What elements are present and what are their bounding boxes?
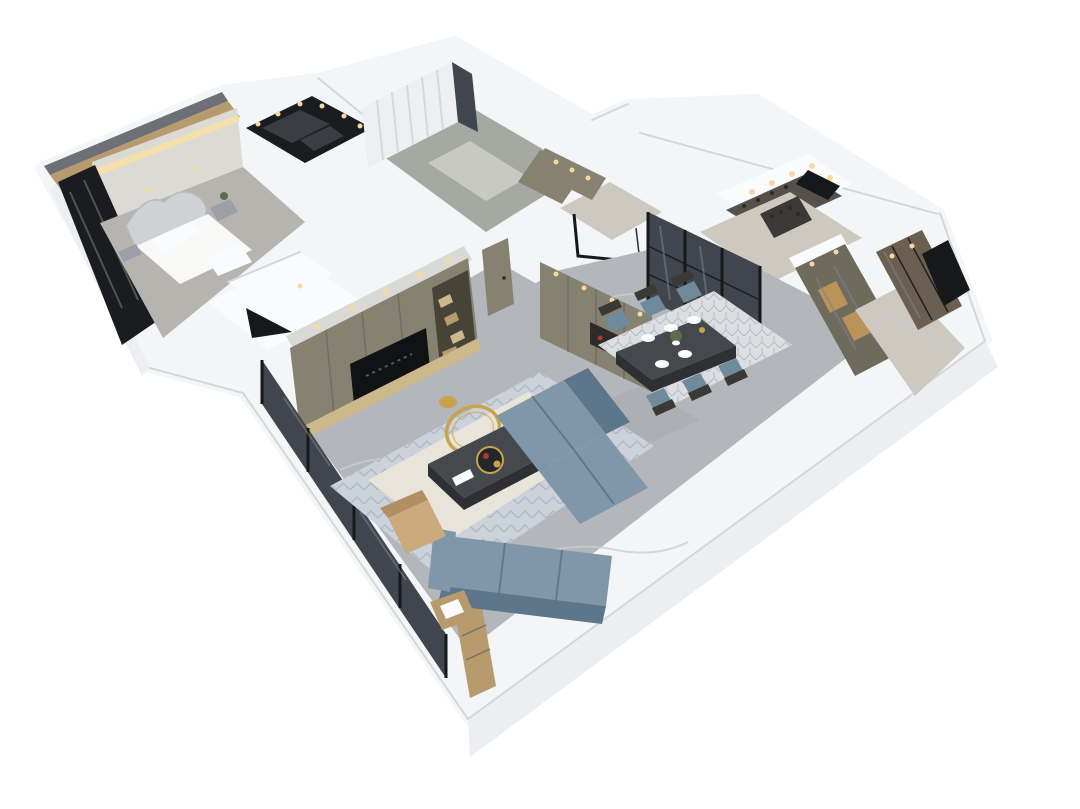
wine-bottle (770, 191, 774, 195)
downlight (769, 180, 775, 186)
red-decor (598, 336, 603, 341)
gold-decor (699, 327, 705, 333)
apartment-cutaway-render: Photorealistic 3D dollhouse cutaway rend… (0, 0, 1080, 809)
gold-side-stool (439, 396, 457, 408)
downlight (789, 171, 795, 177)
downlight (910, 244, 915, 249)
downlight (834, 250, 839, 255)
wine-bottle (779, 210, 783, 214)
wall-sconce (146, 188, 151, 193)
dinner-plate (655, 360, 669, 368)
downlight (417, 272, 423, 278)
tray-decor (483, 453, 489, 459)
downlight (554, 160, 559, 165)
wine-bottle (770, 214, 774, 218)
dinner-plate (678, 350, 692, 358)
downlight (445, 258, 451, 264)
downlight (554, 272, 559, 277)
centerpiece-vase (672, 341, 680, 346)
render-canvas: Photorealistic 3D dollhouse cutaway rend… (0, 0, 1080, 809)
downlight (383, 289, 389, 295)
downlight (582, 286, 587, 291)
downlight (298, 284, 303, 289)
tray-decor (494, 461, 501, 468)
wine-bottle (788, 206, 792, 210)
dinner-plate (641, 334, 655, 342)
downlight (809, 163, 815, 169)
wine-bottle (796, 212, 800, 216)
downlight (570, 168, 575, 173)
downlight (638, 312, 643, 317)
gold-tray (477, 447, 503, 473)
downlight (810, 262, 815, 267)
downlight (276, 112, 281, 117)
downlight (320, 104, 325, 109)
wine-bottle (742, 204, 746, 208)
downlight (342, 114, 347, 119)
potted-plant (220, 192, 228, 200)
wall-sconce (194, 168, 199, 173)
wine-bottle (784, 185, 788, 189)
dinner-plate (687, 316, 701, 324)
downlight (890, 254, 895, 259)
downlight (256, 122, 261, 127)
downlight (749, 189, 755, 195)
downlight (298, 102, 303, 107)
downlight (349, 306, 355, 312)
downlight (586, 176, 591, 181)
floral-centerpiece (670, 330, 682, 342)
downlight (358, 124, 363, 129)
door-handle (502, 276, 506, 280)
wine-bottle (756, 198, 760, 202)
downlight (315, 323, 321, 329)
